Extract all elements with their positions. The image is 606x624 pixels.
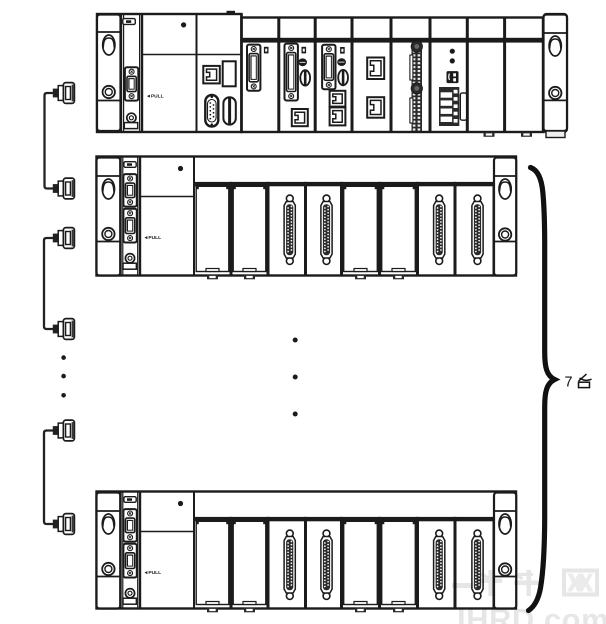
svg-text:IHRD.com: IHRD.com <box>457 602 606 624</box>
svg-text:7: 7 <box>565 375 573 391</box>
svg-text:◄PULL: ◄PULL <box>144 570 162 576</box>
svg-text:◄PULL: ◄PULL <box>144 235 162 241</box>
svg-text:◄PULL: ◄PULL <box>146 94 164 100</box>
